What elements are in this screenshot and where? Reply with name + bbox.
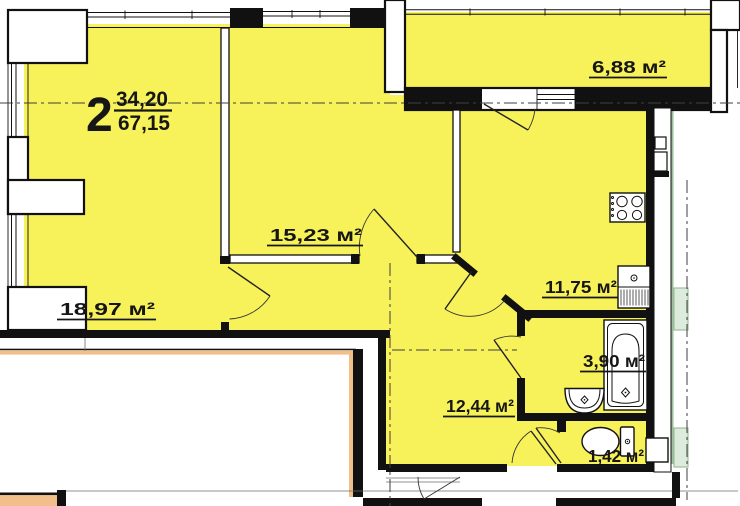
room-label-kitchen: 11,75 м² bbox=[545, 277, 617, 297]
wall-niche bbox=[646, 438, 668, 462]
wall-segment bbox=[230, 8, 263, 28]
kitchen-sink bbox=[618, 266, 650, 308]
neighbor-wall-line bbox=[0, 349, 356, 351]
vent-duct bbox=[655, 137, 666, 149]
wall-bathroom-south bbox=[517, 413, 654, 421]
neighbor-bottom-peach bbox=[0, 495, 57, 506]
adjacent-fixture bbox=[674, 288, 688, 330]
vent-shaft-bar bbox=[646, 171, 669, 177]
corridor-wall bbox=[672, 472, 680, 498]
room-label-wc: 1,42 м² bbox=[588, 446, 644, 466]
partition-living-bedroom bbox=[221, 28, 229, 262]
wall-hallway-west bbox=[378, 338, 386, 470]
wall-pier bbox=[385, 0, 405, 92]
neighbor-wall-peach-vertical bbox=[349, 351, 353, 497]
corridor-wall bbox=[556, 498, 676, 506]
vent-duct bbox=[654, 152, 667, 171]
room-label-bedroom: 15,23 м² bbox=[270, 225, 362, 245]
room-balcony-floor bbox=[405, 12, 711, 92]
room-label-hallway: 12,44 м² bbox=[446, 396, 514, 416]
floor-plan-canvas: 2 34,20 67,15 18,97 м² 15,23 м² 11,75 м²… bbox=[0, 0, 740, 506]
wall-bathroom-north bbox=[517, 310, 654, 318]
neighbor-wall bbox=[353, 349, 363, 497]
neighbor-wall-peach bbox=[0, 351, 356, 355]
wall-segment bbox=[350, 8, 385, 28]
adjacent-fixture bbox=[674, 428, 688, 467]
wall-bathroom-west bbox=[517, 318, 525, 336]
wall-living-south bbox=[0, 330, 390, 338]
wall-segment bbox=[405, 88, 482, 110]
partition-bedroom-kitchen bbox=[453, 110, 460, 252]
apartment-total-area: 67,15 bbox=[118, 112, 170, 135]
room-label-living: 18,97 м² bbox=[60, 299, 155, 319]
partition-bedroom-south bbox=[230, 255, 359, 263]
neighbor-door-leaf bbox=[424, 477, 460, 499]
room-label-balcony: 6,88 м² bbox=[592, 57, 666, 77]
room-label-bathroom: 3,90 м² bbox=[583, 351, 645, 371]
wall-pilaster bbox=[8, 180, 84, 214]
neighbor-bottom-line bbox=[0, 493, 57, 496]
wall-corner-block bbox=[711, 0, 740, 30]
wall-south bbox=[386, 464, 507, 472]
apartment-number: 2 bbox=[86, 89, 113, 142]
wall-pier bbox=[711, 30, 727, 112]
partition-cap bbox=[220, 256, 230, 264]
partition-stub bbox=[221, 322, 229, 338]
wall-segment bbox=[575, 88, 713, 110]
wall-segment bbox=[8, 10, 87, 63]
door-jamb bbox=[417, 254, 425, 264]
floor-plan-page: 2 34,20 67,15 18,97 м² 15,23 м² 11,75 м²… bbox=[0, 0, 740, 506]
stove bbox=[610, 193, 645, 222]
neighbor-door-arc bbox=[418, 477, 424, 499]
apartment-living-area: 34,20 bbox=[116, 88, 168, 111]
door-jamb bbox=[351, 254, 359, 264]
neighbor-bottom-wall bbox=[57, 490, 66, 506]
wall-wc-west bbox=[557, 421, 566, 432]
corridor-wall bbox=[363, 498, 482, 506]
